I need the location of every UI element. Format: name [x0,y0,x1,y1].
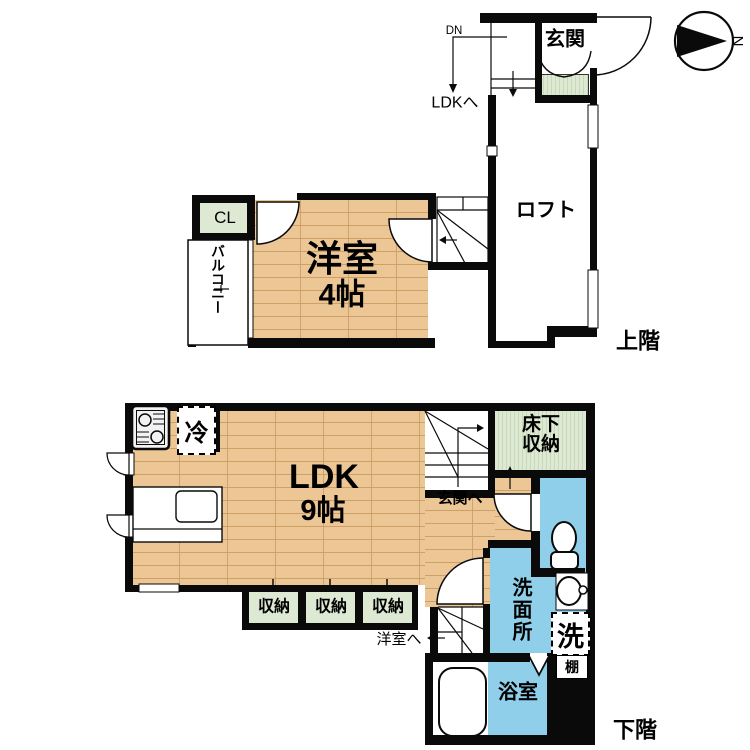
closet-cl-label: CL [214,209,236,227]
genkan-label: 玄関 [545,30,585,51]
underfloor-storage-line2: 収納 [522,435,560,455]
ldk-size-label: 9帖 [300,496,345,526]
loft-label: ロフト [516,201,576,222]
shelf-box: 棚 [556,655,588,679]
fridge-label: 冷 [185,413,209,448]
upper-room-size-label: 4帖 [319,279,366,311]
washroom-label: 洗面所 [510,577,530,643]
balcony-label: バルコニー [211,244,225,314]
shelf-label: 棚 [565,657,579,677]
laundry-label: 洗 [557,615,584,654]
fridge-box: 冷 [177,406,216,455]
underfloor-storage-label: 床下 収納 [522,415,560,455]
closet-label-2: 収納 [315,600,347,617]
upper-floor-name-label: 上階 [616,329,660,352]
to-room-label: 洋室へ [376,632,421,648]
upper-room-label: 洋室 [306,240,378,278]
ldk-label: LDK [289,460,359,496]
closet-label-1: 収納 [258,600,290,617]
underfloor-storage-line1: 床下 [522,415,560,435]
lower-floor-name-label: 下階 [613,718,657,741]
plan-labels: 玄関 DN LDKへ ロフト 洋室 4帖 CL バルコニー 上階 N LDK 9… [0,0,750,750]
compass-north-label: N [729,36,745,47]
dn-label: DN [446,25,463,37]
bathroom-label: 浴室 [498,683,538,704]
to-genkan-label: 玄関へ [437,491,482,507]
floor-plan: 玄関 DN LDKへ ロフト 洋室 4帖 CL バルコニー 上階 N LDK 9… [0,0,750,750]
closet-label-3: 収納 [372,600,404,617]
laundry-box: 洗 [551,612,590,656]
to-ldk-label: LDKへ [431,96,478,113]
